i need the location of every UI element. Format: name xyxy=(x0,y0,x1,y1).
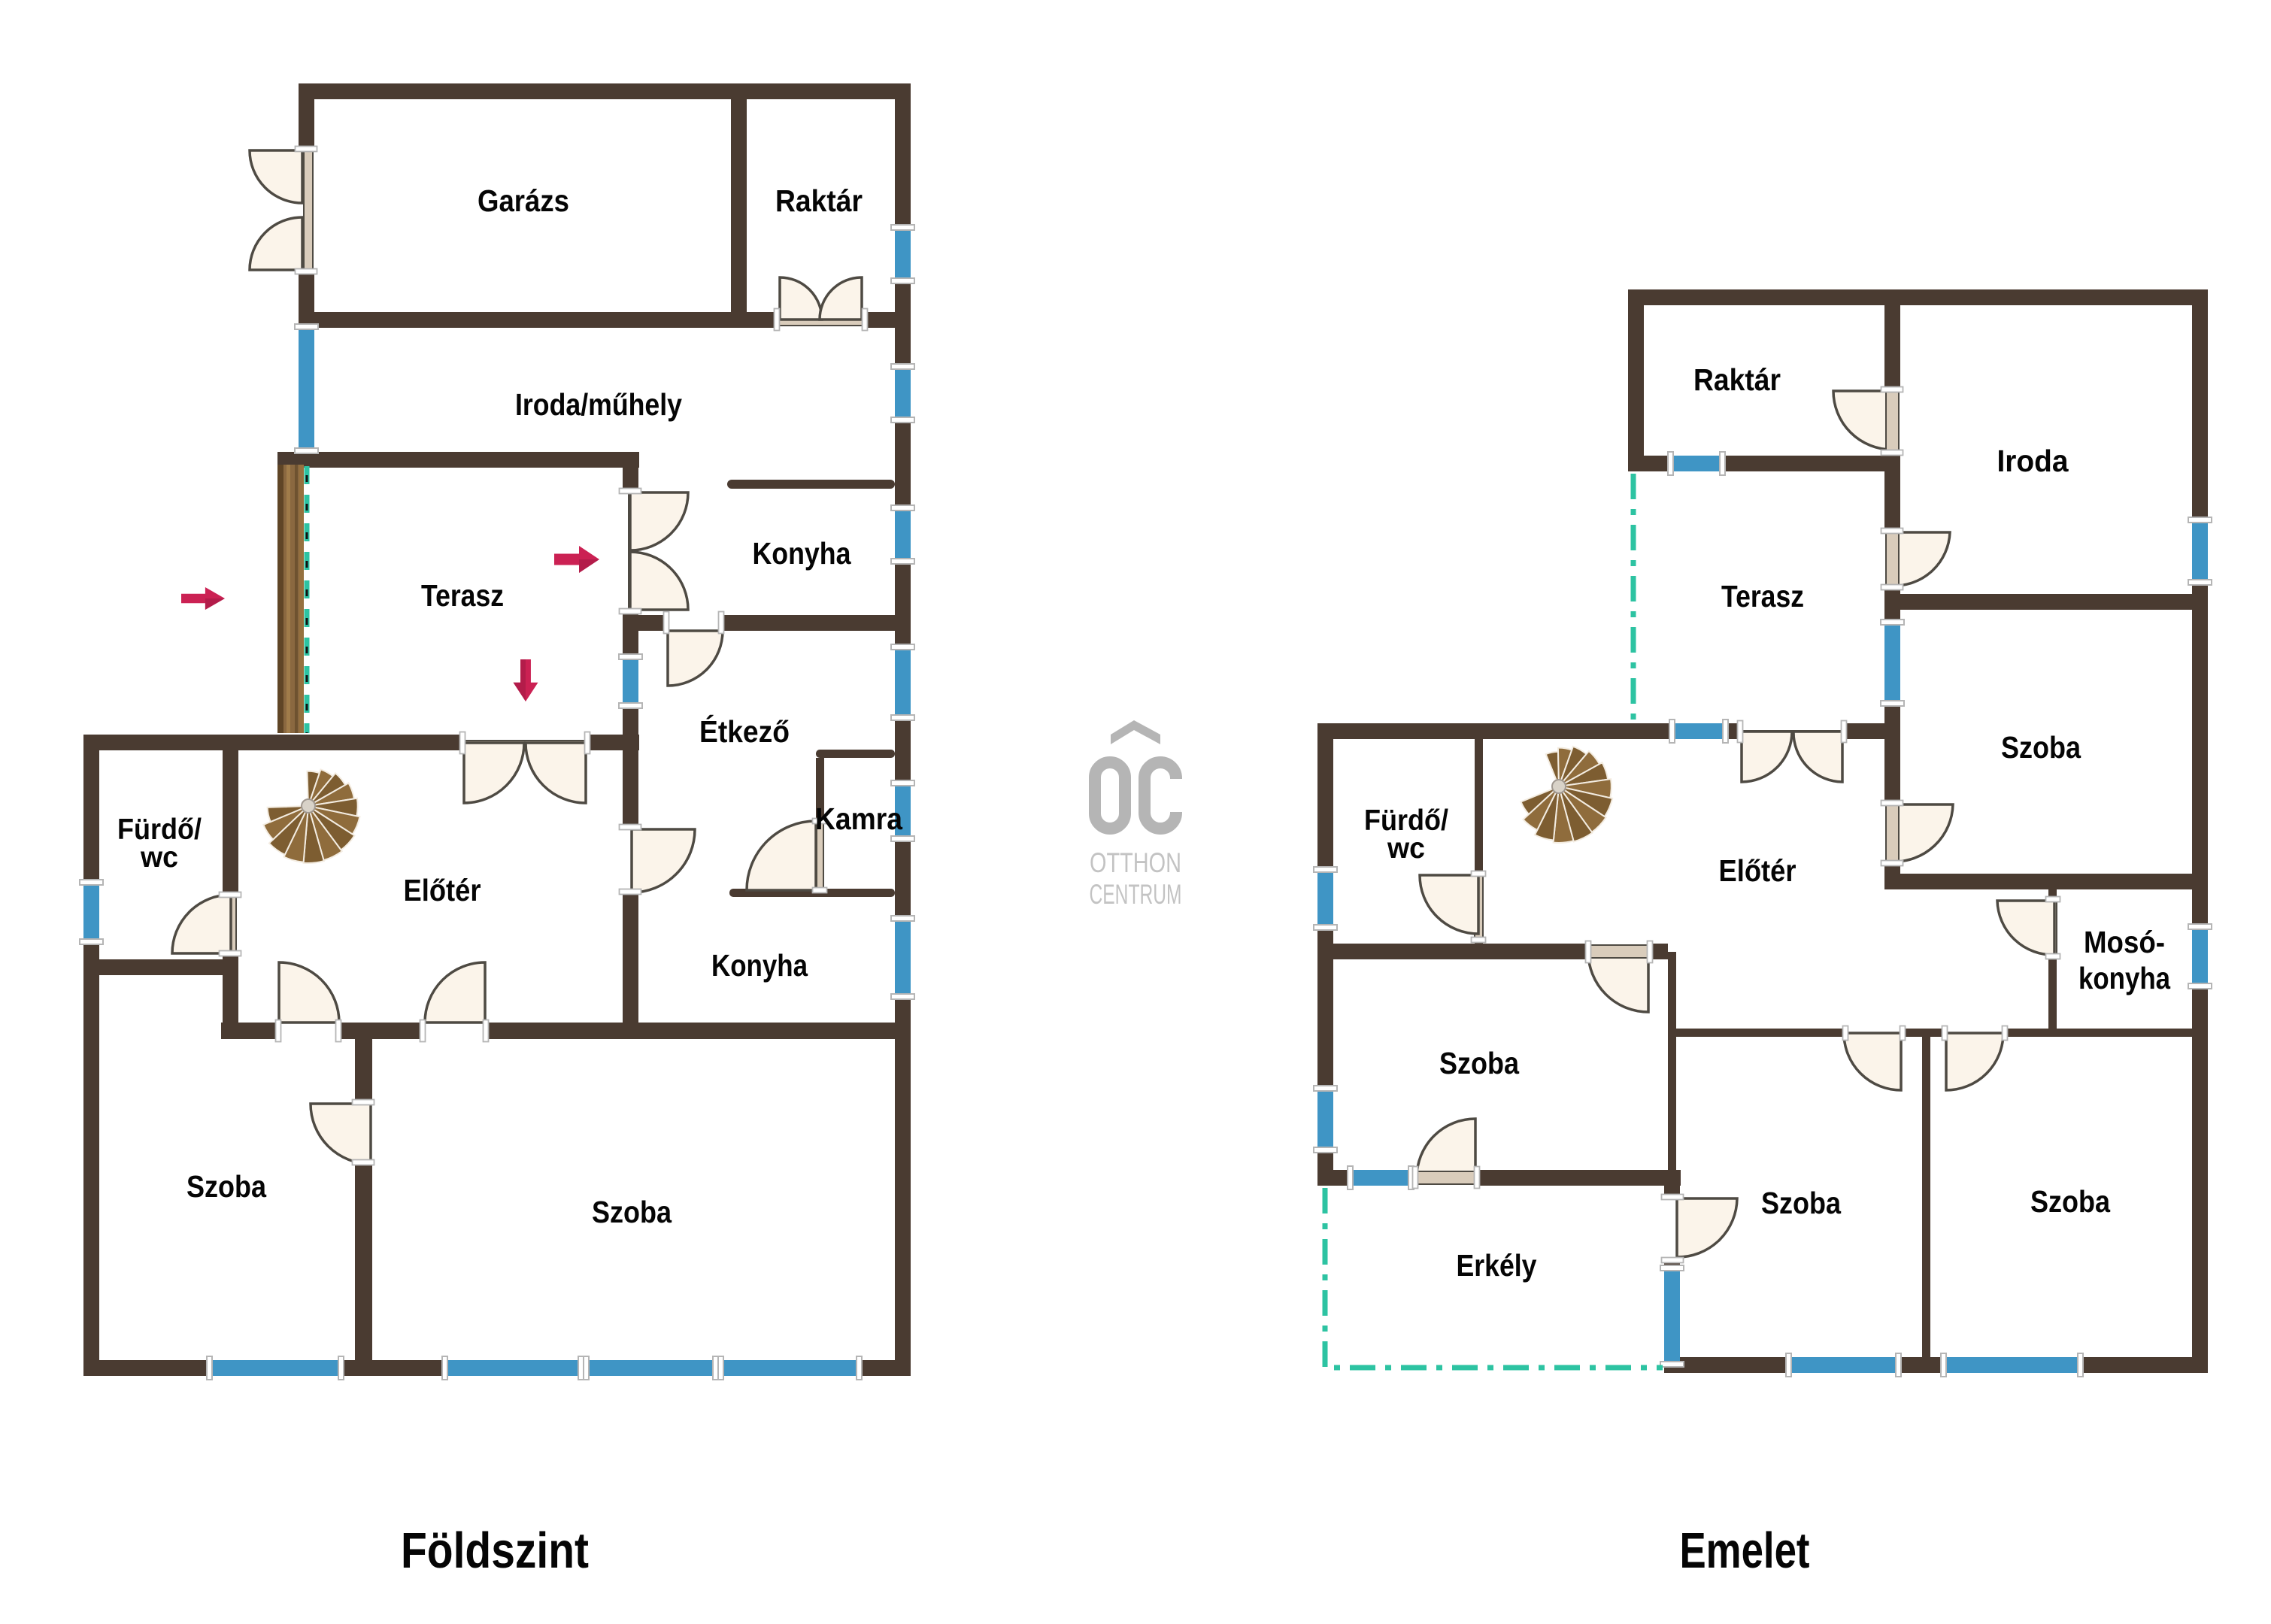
svg-text:Szoba: Szoba xyxy=(2030,1184,2111,1219)
svg-text:Terasz: Terasz xyxy=(1721,579,1804,614)
svg-text:Szoba: Szoba xyxy=(2001,730,2081,765)
svg-text:Emelet: Emelet xyxy=(1680,1522,1810,1579)
svg-text:Iroda: Iroda xyxy=(1997,444,2069,478)
svg-text:Iroda/műhely: Iroda/műhely xyxy=(515,387,682,422)
svg-text:Kamra: Kamra xyxy=(815,801,903,836)
svg-text:Konyha: Konyha xyxy=(753,536,852,571)
svg-text:Raktár: Raktár xyxy=(1693,362,1781,397)
svg-text:OTTHON: OTTHON xyxy=(1090,847,1181,878)
svg-text:Szoba: Szoba xyxy=(186,1169,267,1204)
svg-text:Előtér: Előtér xyxy=(404,873,481,907)
svg-text:Szoba: Szoba xyxy=(592,1195,672,1229)
svg-text:Szoba: Szoba xyxy=(1761,1186,1842,1220)
svg-text:Raktár: Raktár xyxy=(775,183,863,218)
svg-text:Terasz: Terasz xyxy=(421,578,504,613)
svg-text:Előtér: Előtér xyxy=(1719,853,1796,888)
svg-text:wc: wc xyxy=(1387,832,1425,865)
svg-text:konyha: konyha xyxy=(2078,961,2171,995)
svg-text:Erkély: Erkély xyxy=(1457,1248,1537,1283)
svg-text:Szoba: Szoba xyxy=(1439,1046,1520,1080)
svg-text:Földszint: Földszint xyxy=(401,1522,589,1579)
svg-text:Konyha: Konyha xyxy=(711,948,808,983)
svg-text:CENTRUM: CENTRUM xyxy=(1090,879,1182,910)
svg-text:wc: wc xyxy=(140,841,178,874)
svg-text:Mosó-: Mosó- xyxy=(2084,925,2165,959)
svg-text:Garázs: Garázs xyxy=(478,183,569,218)
svg-text:Étkező: Étkező xyxy=(699,714,790,749)
